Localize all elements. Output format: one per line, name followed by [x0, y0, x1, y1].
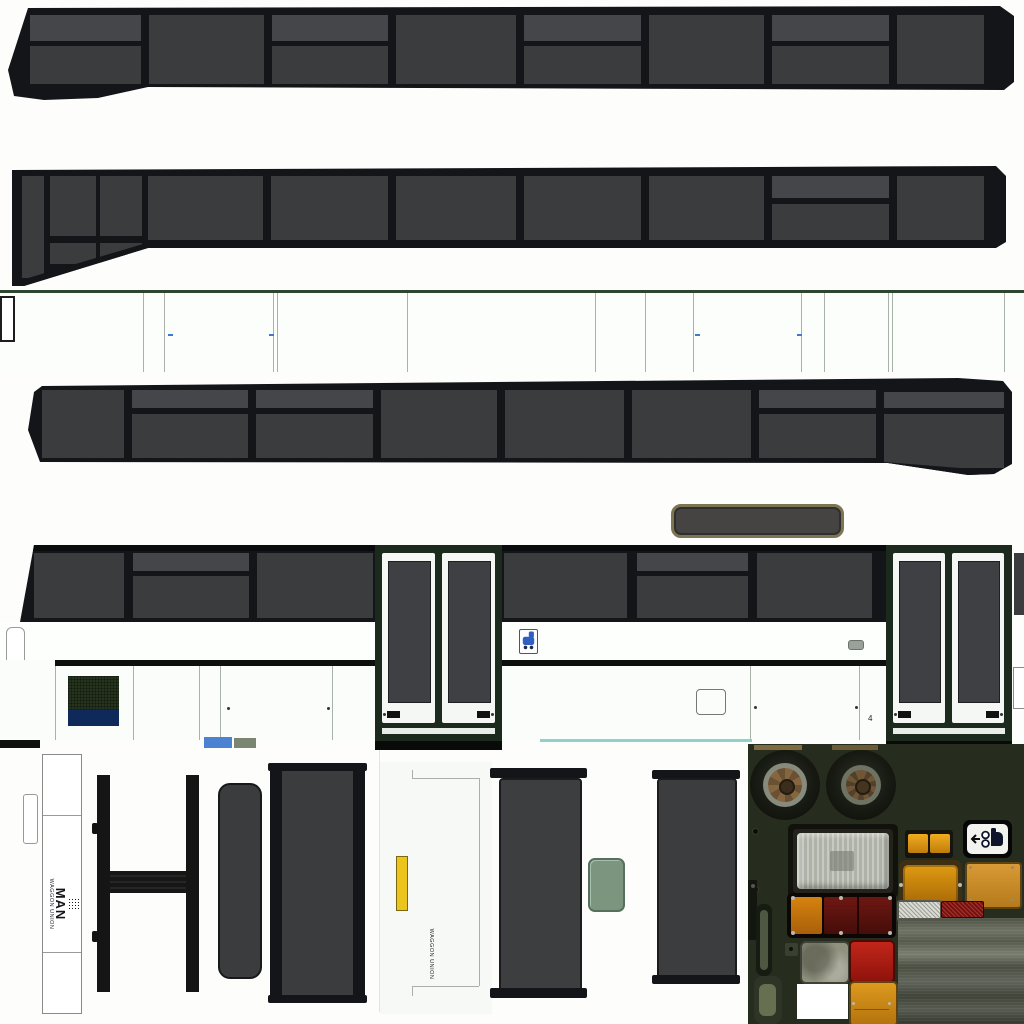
door-window: [448, 561, 491, 703]
leaf-cap: [652, 975, 740, 984]
grille-upper: [68, 676, 119, 710]
screw: [969, 866, 972, 869]
double-door-rear: [886, 545, 1012, 750]
window-pane: [22, 176, 44, 278]
rounded-glass-bar: [218, 783, 262, 979]
window-pane: [524, 46, 641, 84]
window-pane: [504, 553, 627, 618]
screw: [888, 896, 892, 900]
lock-dot: [227, 707, 230, 710]
door-base-panel: WAGGON UNION: [380, 762, 492, 1014]
hatch-seam: [750, 666, 751, 740]
window-pane: [772, 46, 889, 84]
window-pane: [396, 15, 516, 84]
roof-edge-line: [0, 290, 1024, 293]
window-pane: [133, 576, 249, 618]
window-pane: [272, 46, 388, 84]
grab-handle: [848, 640, 864, 650]
detail-photo-block: [748, 744, 1024, 1024]
window-pane: [256, 414, 373, 458]
window-pane: [148, 176, 263, 240]
panel-seam: [824, 293, 825, 372]
rivet-mark: [797, 334, 802, 336]
man-subtitle-text: WAGGON UNION: [47, 851, 54, 957]
panel-seam: [273, 293, 274, 372]
vent-pane: [133, 553, 249, 571]
arrow-left-icon: [972, 835, 980, 843]
roof-vent: [671, 504, 844, 538]
screw: [791, 931, 795, 935]
screw: [899, 883, 903, 887]
pram-sign: [963, 820, 1012, 858]
man-front-panel: MAN WAGGON UNION: [42, 754, 82, 1014]
wheel-front: [748, 748, 823, 823]
hatch-seam: [332, 666, 333, 740]
grille-lower: [68, 710, 119, 726]
window-frame-bar: [50, 236, 142, 243]
headlight-bulb-patch: [830, 851, 854, 871]
door-leaf: [952, 553, 1004, 723]
window-pane: [149, 15, 264, 84]
window-pane: [271, 176, 388, 240]
edge-fragment-dark: [0, 740, 40, 748]
box-dot: [789, 947, 793, 951]
pedal-face: [759, 984, 776, 1016]
screw: [852, 1002, 855, 1005]
leaf-glass: [657, 778, 737, 980]
vent-pane: [256, 390, 373, 408]
pillar-bar: [186, 775, 199, 992]
screw: [752, 828, 759, 835]
side-marker-pair: [905, 830, 953, 858]
vent-pane: [637, 553, 748, 571]
door-handle: [898, 711, 911, 718]
man-dot-matrix: [67, 898, 80, 911]
door-leaf: [893, 553, 945, 723]
panel-outline: [479, 778, 480, 986]
panel-outline: [412, 770, 413, 779]
pram-icon: [967, 824, 1008, 854]
hinge-pipe: [760, 910, 768, 970]
window-pane: [759, 414, 876, 458]
vent-pane: [772, 15, 889, 41]
panel-outline: [412, 986, 413, 996]
filler-door: [696, 689, 726, 715]
window-post: [270, 765, 282, 1003]
window-strip-3: [28, 378, 1016, 478]
screw: [791, 896, 795, 900]
hatch-seam: [220, 666, 221, 740]
pedal-blob: [754, 976, 782, 1024]
screw: [1011, 898, 1014, 901]
pillar-nub: [92, 931, 98, 942]
window-pane: [257, 553, 373, 618]
window-strip-1: [8, 6, 1016, 101]
vent-pane: [30, 15, 141, 41]
area-number: 4: [868, 714, 872, 723]
window-pane: [396, 176, 516, 240]
window-pane: [381, 390, 497, 458]
window-pane: [649, 176, 764, 240]
vent-pane: [884, 392, 1004, 408]
panel-seam: [801, 293, 802, 372]
leaf-cap: [490, 988, 587, 998]
window-pane: [897, 15, 984, 84]
window-pane: [1014, 553, 1024, 615]
lamp-molding-line: [854, 1009, 889, 1010]
pram-sticker-icon: [521, 630, 536, 651]
door-dot: [894, 713, 897, 716]
door-dot: [491, 713, 494, 716]
rivet-mark: [695, 334, 700, 336]
window-post: [353, 765, 365, 1003]
screw: [958, 883, 962, 887]
lock-dot: [327, 707, 330, 710]
rivet-mark: [269, 334, 274, 336]
man-brand-text: MAN: [54, 851, 67, 957]
door-pillar-frame: [92, 775, 202, 992]
screw: [888, 931, 892, 935]
white-patch: [797, 984, 848, 1019]
door-leaf: [382, 553, 435, 723]
radiator-grille: [68, 676, 119, 726]
hatch-seam: [199, 666, 200, 740]
pillar-crossbar: [110, 871, 186, 893]
orange-lamp: [849, 981, 898, 1024]
panel-seam: [164, 293, 165, 372]
texture-atlas: 4: [0, 0, 1024, 1024]
vent-pane: [132, 390, 248, 408]
pram-sticker: [519, 629, 538, 654]
window-pane: [30, 46, 141, 84]
door-handle: [387, 711, 400, 718]
hub-cap: [855, 779, 871, 795]
builder-label-text: WAGGON UNION: [424, 916, 434, 992]
edge-teal-line: [540, 739, 752, 742]
vent-pane: [272, 15, 388, 41]
panel-seam: [693, 293, 694, 372]
panel-outline: [412, 778, 479, 779]
window-cap: [268, 763, 367, 771]
hatch-seam: [859, 666, 860, 740]
edge-box: [1013, 667, 1024, 709]
door-window: [388, 561, 431, 703]
screw: [1011, 866, 1014, 869]
bracket-dot: [751, 884, 755, 888]
body-white-band: [0, 290, 1024, 372]
door-handle: [477, 711, 490, 718]
vent-pane: [759, 390, 876, 408]
door-dot: [1000, 713, 1003, 716]
mirror-plate-box: [23, 794, 38, 844]
lock-dot: [855, 706, 858, 709]
window-pane: [524, 176, 641, 240]
door-dot: [383, 713, 386, 716]
indicator-lens: [903, 865, 958, 904]
leaf-glass: [499, 778, 582, 992]
door-glass-leaf: [650, 770, 742, 993]
screw: [839, 896, 843, 900]
tail-amber-cell: [791, 897, 822, 934]
panel-seam: [143, 293, 144, 372]
screw: [839, 931, 843, 935]
window-pane: [757, 553, 872, 618]
door-bottom-bar: [375, 741, 502, 750]
vent-pane: [524, 15, 641, 41]
panel-seam-line: [43, 815, 81, 816]
panel-seam: [1004, 293, 1005, 372]
screw: [888, 1002, 891, 1005]
window-strip-2: [8, 166, 1008, 288]
panel-outline: [412, 986, 479, 987]
door-window: [899, 561, 941, 703]
panel-seam: [888, 293, 889, 372]
mirror-glass: [588, 858, 625, 912]
headlight: [788, 824, 898, 898]
window-pane: [282, 770, 353, 996]
pillar-nub: [92, 823, 98, 834]
door-leaf: [442, 553, 495, 723]
window-pane: [34, 553, 124, 618]
reflector-texture: [942, 902, 983, 917]
red-lamp: [849, 940, 895, 983]
window-pane: [132, 414, 248, 458]
edge-fragment-blue: [204, 737, 232, 748]
window-pane: [897, 176, 984, 240]
man-logo-block: MAN WAGGON UNION: [44, 851, 80, 957]
door-step-strip: [893, 728, 1005, 734]
window-pane: [632, 390, 751, 458]
lock-dot: [754, 706, 757, 709]
marker-lens: [908, 834, 928, 853]
hub-cap: [779, 779, 795, 795]
builder-label-block: WAGGON UNION: [424, 916, 434, 992]
leaf-cap: [490, 768, 587, 778]
double-door-front: [375, 545, 502, 750]
window-pane: [637, 576, 748, 618]
tail-divider: [857, 897, 859, 934]
hinge-slot: [756, 904, 772, 976]
window-pane: [884, 414, 1004, 468]
window-pane: [649, 15, 764, 84]
marker-lens: [930, 834, 950, 853]
marker-box: [0, 296, 15, 342]
small-dark-box: [785, 943, 798, 956]
wheel-rear: [824, 748, 899, 823]
tail-light-cluster: [787, 893, 896, 938]
panel-seam: [407, 293, 408, 372]
edge-fragment-grey: [234, 738, 256, 748]
framed-side-window: [268, 763, 367, 1003]
window-pane: [50, 176, 96, 264]
window-pane: [772, 204, 889, 240]
window-pane: [505, 390, 624, 458]
pram-sign-face: [967, 824, 1008, 854]
road-texture: [898, 918, 1024, 1024]
pillar-bar: [97, 775, 110, 992]
hatch-seam: [55, 666, 56, 740]
window-pane: [42, 390, 124, 458]
door-window: [958, 561, 1000, 703]
reflector-red: [941, 901, 984, 918]
panel-seam: [645, 293, 646, 372]
rivet-mark: [168, 334, 173, 336]
vent-pane: [772, 176, 889, 198]
door-glass-leaf: [488, 768, 589, 1000]
yellow-handle: [396, 856, 408, 911]
panel-seam: [595, 293, 596, 372]
grey-lamp: [800, 941, 850, 984]
door-step-strip: [382, 728, 495, 734]
window-cap: [268, 995, 367, 1003]
panel-seam: [892, 293, 893, 372]
door-handle: [986, 711, 999, 718]
hatch-seam: [133, 666, 134, 740]
panel-seam: [277, 293, 278, 372]
